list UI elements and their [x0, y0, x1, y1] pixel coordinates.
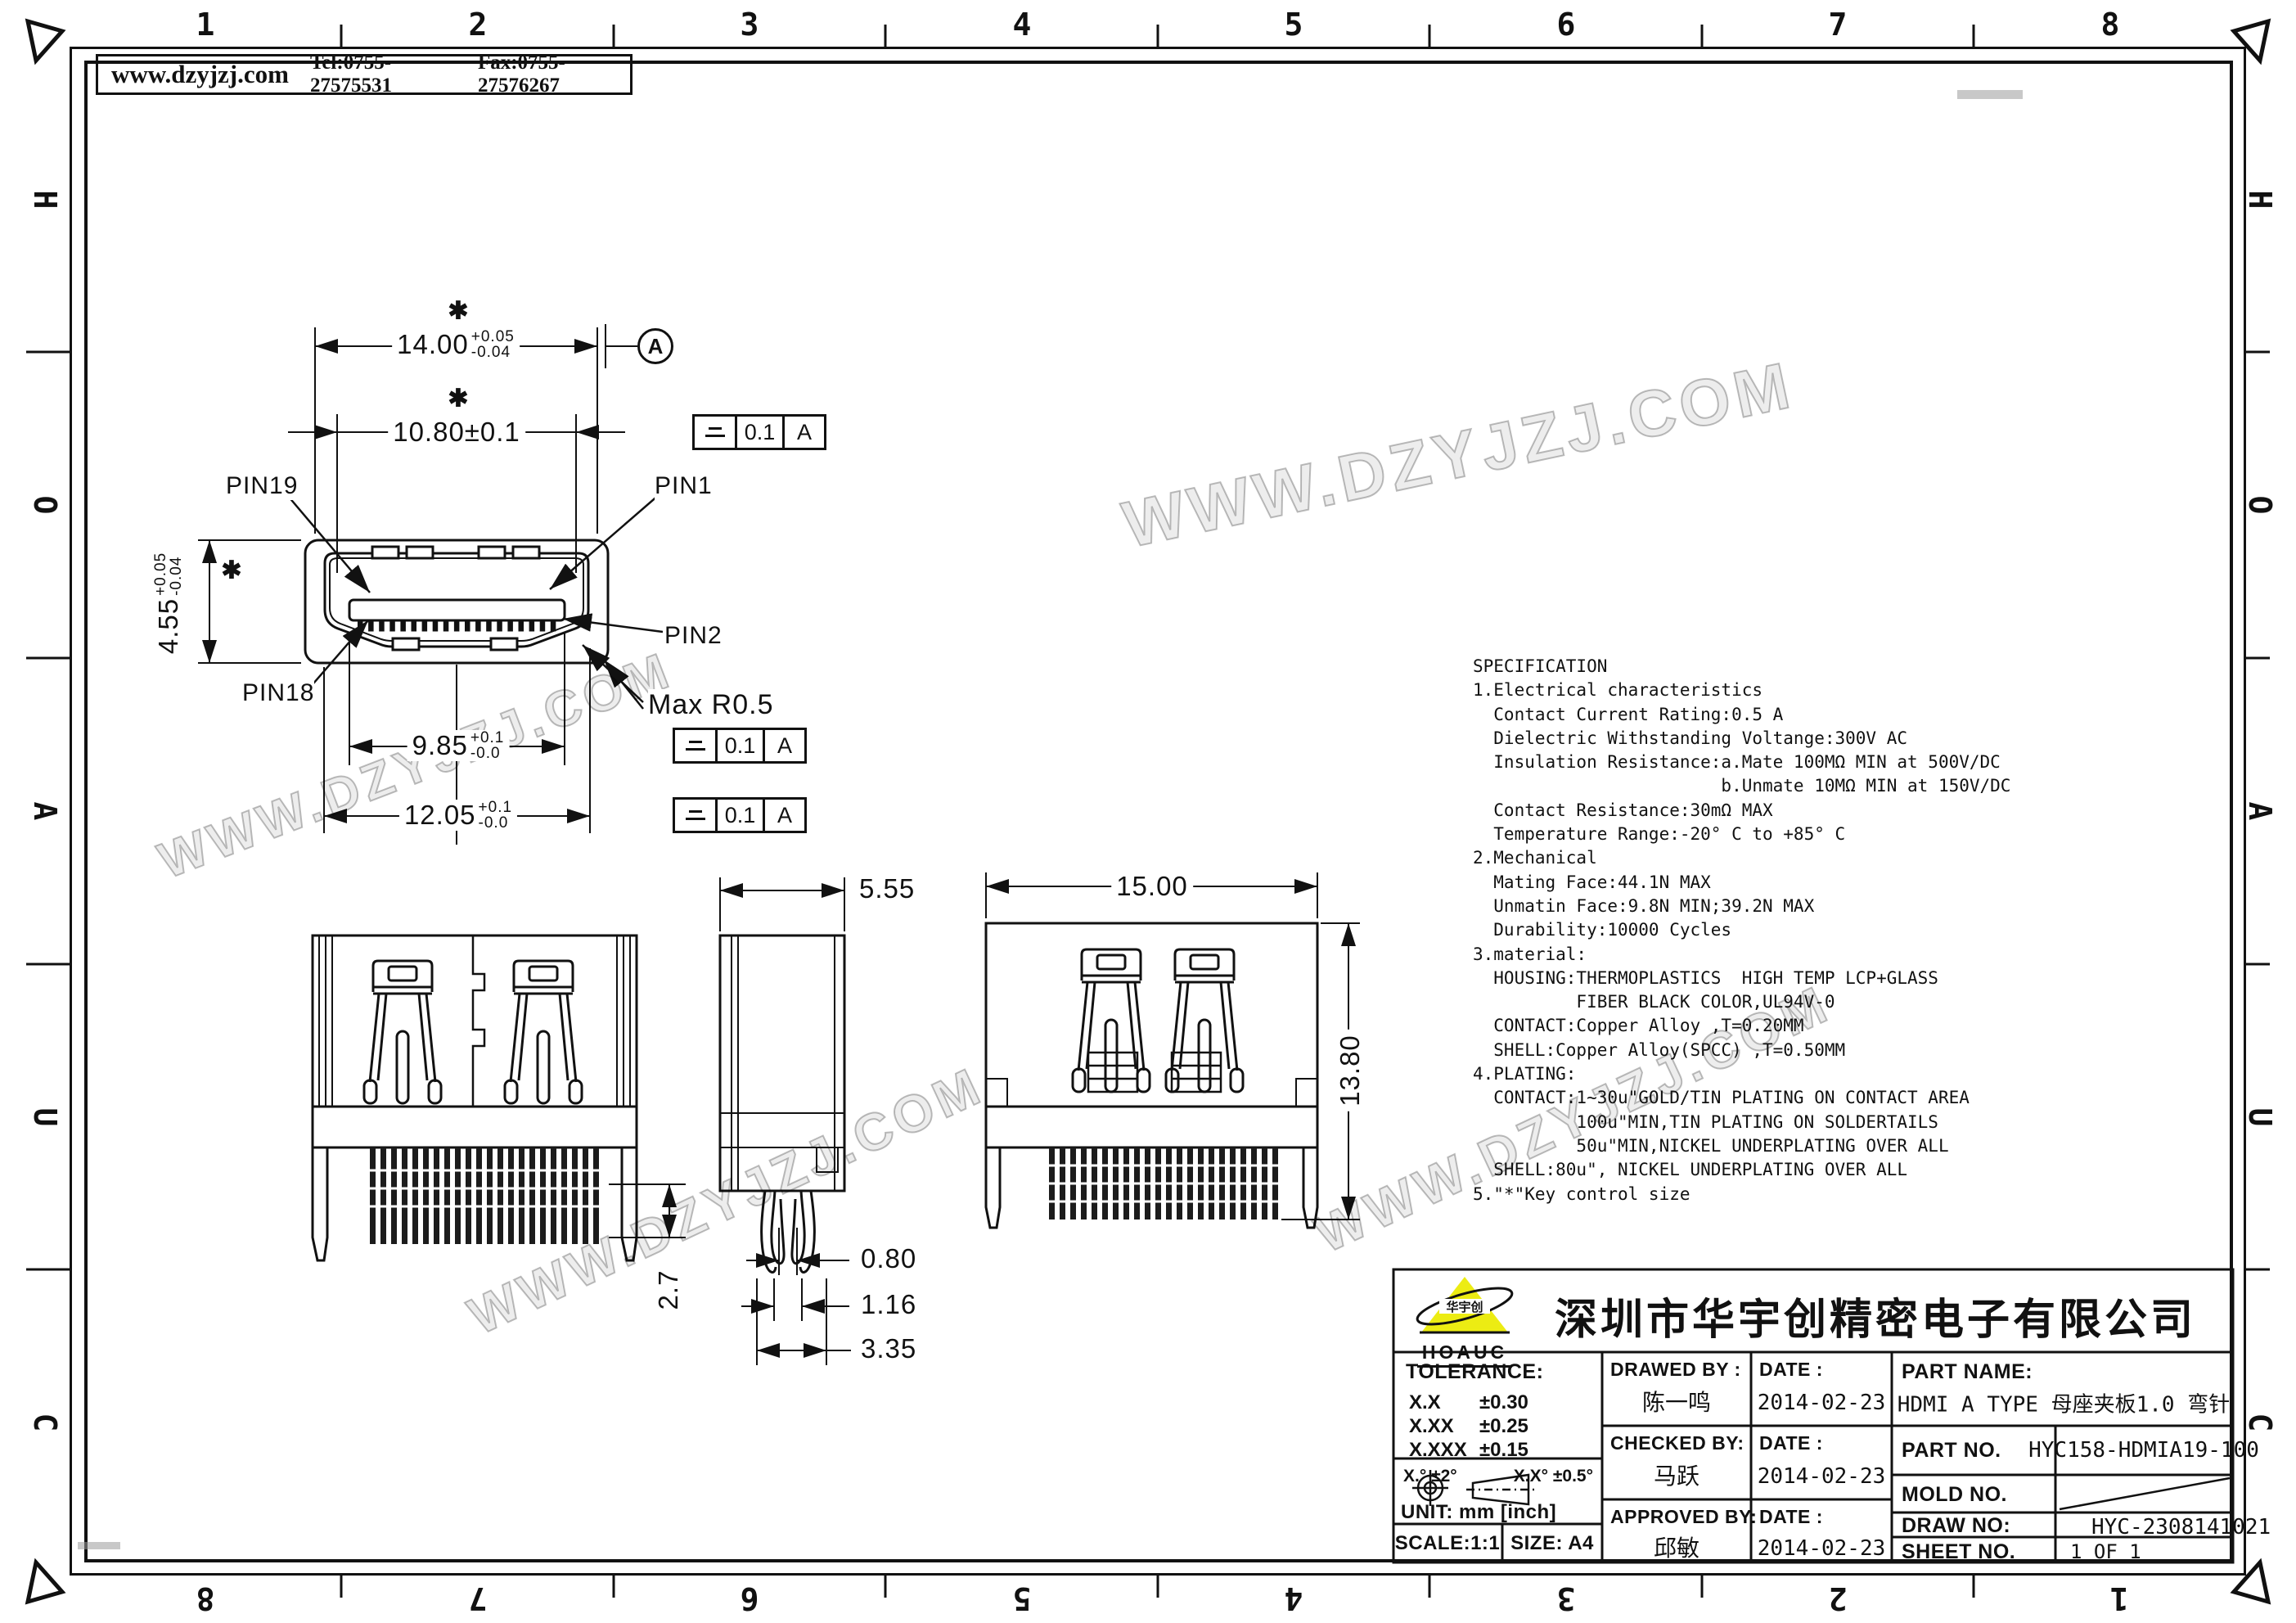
tol-value: ±0.15	[1479, 1439, 1528, 1462]
zone-row-left-u: U	[27, 1108, 63, 1127]
pin2-label: PIN2	[664, 622, 723, 650]
fcf-tolerance: 0.1	[737, 417, 785, 448]
print-artifact	[1957, 90, 2023, 99]
tol-plus: +0.1	[470, 730, 505, 746]
scale-label: SCALE:1:1	[1395, 1532, 1501, 1555]
tol-plus: +0.05	[471, 329, 515, 345]
drawn-by-label: DRAWED BY :	[1610, 1359, 1741, 1381]
zone-col-top-6: 6	[1557, 7, 1576, 43]
part-no-value: HYC158-HDMIA19-100	[2028, 1438, 2259, 1463]
zone-row-right-a: A	[2242, 802, 2278, 821]
dim-value: 10.80±0.1	[393, 417, 520, 447]
approved-date: 2014-02-23	[1758, 1536, 1886, 1561]
dim-value: 4.55	[154, 598, 183, 654]
part-name-label: PART NAME:	[1902, 1360, 2033, 1384]
vendor-tel: Tel:0755-27575531	[310, 52, 457, 97]
tol-value: ±0.30	[1479, 1391, 1528, 1414]
parallelism-icon	[675, 730, 718, 761]
dim-value: 12.05	[404, 800, 476, 830]
logo-cn-text: 华宇创	[1446, 1300, 1483, 1314]
zone-col-bottom-4: 5	[1013, 1580, 1032, 1616]
parallelism-icon	[675, 800, 718, 831]
pin18-label: PIN18	[242, 679, 314, 707]
datum-a-flag: A	[637, 328, 673, 364]
checked-by-name: 马跃	[1654, 1458, 1699, 1491]
dim-face-height: 4.55 +0.05-0.04	[153, 548, 184, 659]
zone-col-bottom-1: 8	[196, 1580, 215, 1616]
dim-clamp-width: 3.35	[856, 1334, 921, 1364]
drawing-sheet: www.dzyjzj.com Tel:0755-27575531 Fax:075…	[0, 0, 2296, 1623]
zone-col-bottom-6: 3	[1557, 1580, 1576, 1616]
fcf-datum: A	[765, 800, 804, 831]
zone-col-top-3: 3	[741, 7, 759, 43]
sheet-no-label: SHEET NO.	[1902, 1540, 2015, 1564]
tolerance-row: X.XXX ±0.15	[1409, 1439, 1528, 1462]
drawn-date: 2014-02-23	[1758, 1391, 1886, 1415]
vendor-fax: Fax:0755-27576267	[478, 52, 630, 97]
tol-minus: -0.0	[470, 746, 505, 761]
zone-row-right-u: U	[2242, 1108, 2278, 1127]
zone-row-right-o: O	[2242, 496, 2278, 515]
zone-col-top-8: 8	[2101, 7, 2120, 43]
feature-control-frame: 0.1 A	[692, 414, 826, 450]
part-name-value: HDMI A TYPE 母座夹板1.0 弯针	[1898, 1388, 2230, 1418]
dim-rear-width: 15.00	[1111, 872, 1193, 901]
tol-angle-1: X.° ±2°	[1403, 1467, 1457, 1486]
zone-col-top-7: 7	[1829, 7, 1848, 43]
tolerance-row: X.X ±0.30	[1409, 1391, 1528, 1414]
part-no-label: PART NO.	[1902, 1439, 2001, 1463]
zone-row-right-c: C	[2242, 1413, 2278, 1432]
zone-row-left-a: A	[27, 802, 63, 821]
drawn-by-name: 陈一鸣	[1642, 1385, 1711, 1418]
zone-col-top-5: 5	[1285, 7, 1303, 43]
tol-key: X.XXX	[1409, 1439, 1479, 1462]
dim-pin-width: 0.80	[856, 1244, 921, 1274]
pin19-label: PIN19	[226, 472, 298, 500]
size-label: SIZE: A4	[1510, 1532, 1594, 1555]
tol-minus: -0.0	[479, 815, 513, 831]
fcf-tolerance: 0.1	[718, 730, 765, 761]
tol-key: X.XX	[1409, 1415, 1479, 1438]
parallelism-icon	[695, 417, 737, 448]
drawn-date-label: DATE :	[1759, 1359, 1823, 1381]
zone-col-bottom-5: 4	[1285, 1580, 1303, 1616]
approved-by-label: APPROVED BY:	[1610, 1506, 1757, 1528]
zone-col-bottom-2: 7	[469, 1580, 488, 1616]
approved-date-label: DATE :	[1759, 1506, 1823, 1528]
tol-key: X.X	[1409, 1391, 1479, 1414]
key-size-asterisk: ✱	[221, 557, 241, 585]
zone-col-top-4: 4	[1013, 7, 1032, 43]
dim-width-opening: 10.80±0.1	[388, 417, 525, 447]
zone-col-bottom-3: 6	[741, 1580, 759, 1616]
checked-date: 2014-02-23	[1758, 1464, 1886, 1489]
draw-no-label: DRAW NO:	[1902, 1514, 2010, 1538]
feature-control-frame: 0.1 A	[673, 728, 807, 764]
company-name: 深圳市华宇创精密电子有限公司	[1555, 1285, 2196, 1346]
dim-value: 9.85	[412, 731, 468, 760]
tolerance-row: X.XX ±0.25	[1409, 1415, 1528, 1438]
pin1-label: PIN1	[655, 472, 713, 500]
tol-minus: -0.04	[471, 345, 515, 360]
logo-mark: 华宇创	[1403, 1274, 1526, 1337]
fcf-datum: A	[785, 417, 824, 448]
dim-shroud-width: 12.05 +0.1-0.0	[399, 800, 517, 831]
approved-by-name: 邱敏	[1654, 1531, 1699, 1563]
vendor-header: www.dzyjzj.com Tel:0755-27575531 Fax:075…	[96, 54, 633, 95]
zone-col-top-2: 2	[469, 7, 488, 43]
tolerance-title: TOLERANCE:	[1406, 1360, 1543, 1384]
print-artifact	[78, 1542, 120, 1549]
feature-control-frame: 0.1 A	[673, 797, 807, 833]
tolerance-angle-row: X.° ±2° X.X° ±0.5°	[1403, 1467, 1593, 1486]
zone-col-bottom-7: 2	[1829, 1580, 1848, 1616]
tol-value: ±0.25	[1479, 1415, 1528, 1438]
dim-pin-pitch: 1.16	[856, 1290, 921, 1319]
draw-no-value: HYC-2308141021	[2091, 1515, 2271, 1540]
vendor-website: www.dzyjzj.com	[111, 60, 289, 89]
specification-text: SPECIFICATION 1.Electrical characteristi…	[1473, 655, 2010, 1206]
mold-no-label: MOLD NO.	[1902, 1483, 2007, 1507]
company-logo: 华宇创 HOAUC	[1403, 1274, 1526, 1351]
dim-tail-height: 2.7	[654, 1265, 683, 1315]
max-radius-label: Max R0.5	[648, 689, 774, 721]
fcf-datum: A	[765, 730, 804, 761]
tol-plus: +0.05	[153, 552, 169, 596]
dim-value: 14.00	[397, 330, 469, 359]
unit-label: UNIT: mm [inch]	[1401, 1501, 1556, 1524]
tol-minus: -0.04	[169, 552, 184, 596]
dim-tongue-width: 9.85 +0.1-0.0	[407, 730, 510, 761]
zone-row-right-h: H	[2242, 191, 2278, 210]
zone-col-bottom-8: 1	[2110, 1580, 2129, 1616]
tol-angle-2: X.X° ±0.5°	[1514, 1467, 1593, 1486]
dim-rear-height: 13.80	[1335, 1030, 1365, 1111]
tol-plus: +0.1	[479, 800, 513, 815]
key-size-asterisk: ✱	[448, 385, 468, 413]
sheet-no-value: 1 OF 1	[2070, 1540, 2141, 1563]
key-size-asterisk: ✱	[448, 297, 468, 326]
fcf-tolerance: 0.1	[718, 800, 765, 831]
zone-row-left-c: C	[27, 1413, 63, 1432]
dim-side-width: 5.55	[854, 874, 920, 904]
zone-row-left-o: O	[27, 496, 63, 515]
dim-width-outer: 14.00 +0.05-0.04	[392, 329, 520, 360]
checked-date-label: DATE :	[1759, 1432, 1823, 1454]
zone-col-top-1: 1	[196, 7, 215, 43]
zone-row-left-h: H	[27, 191, 63, 210]
checked-by-label: CHECKED BY:	[1610, 1432, 1745, 1454]
